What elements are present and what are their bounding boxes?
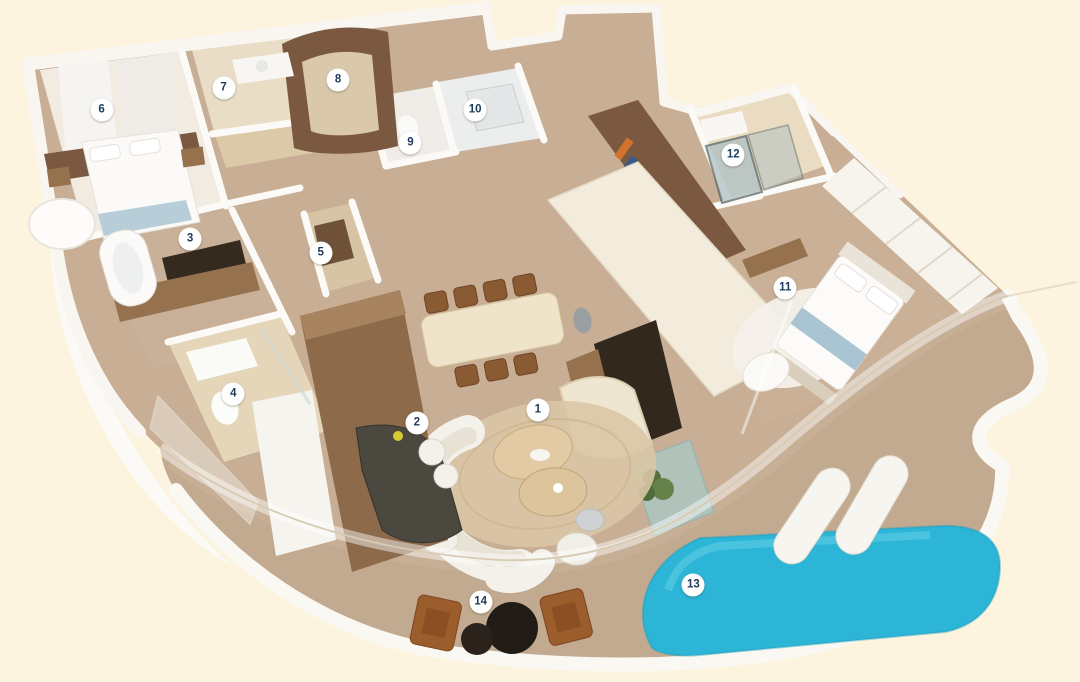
dining-chair — [454, 364, 479, 388]
nightstand — [181, 147, 205, 168]
outdoor-table — [461, 623, 493, 655]
dining-chair — [513, 352, 538, 376]
nightstand — [47, 167, 71, 188]
round-table — [29, 199, 95, 249]
outdoor-table — [486, 602, 538, 654]
flowers — [393, 431, 403, 441]
side-stool — [576, 509, 604, 531]
bowl — [553, 483, 563, 493]
dining-chair — [453, 284, 478, 308]
bar-stool — [419, 439, 445, 465]
dining-chair — [424, 290, 449, 314]
tray — [530, 449, 550, 461]
floor-plan-rendering — [0, 0, 1080, 682]
dining-chair — [512, 273, 537, 297]
basin — [256, 60, 268, 72]
dining-chair — [484, 358, 509, 382]
bar-stool — [434, 464, 458, 488]
entry-curved-wall — [282, 28, 398, 154]
floor-plan-canvas: 1234567891011121314 — [0, 0, 1080, 682]
dining-chair — [482, 279, 507, 303]
